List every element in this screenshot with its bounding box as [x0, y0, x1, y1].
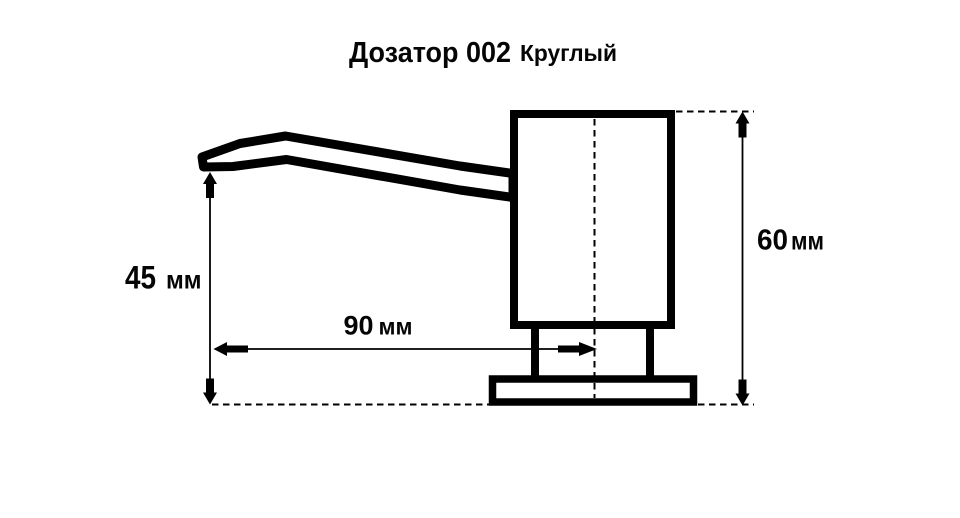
- svg-text:мм: мм: [379, 314, 413, 340]
- svg-text:60: 60: [757, 225, 788, 257]
- svg-text:мм: мм: [791, 228, 824, 256]
- svg-text:мм: мм: [166, 265, 202, 295]
- svg-text:Дозатор 002: Дозатор 002: [349, 37, 511, 69]
- svg-text:45: 45: [125, 260, 156, 296]
- svg-text:90: 90: [344, 311, 374, 341]
- svg-text:Круглый: Круглый: [520, 40, 617, 66]
